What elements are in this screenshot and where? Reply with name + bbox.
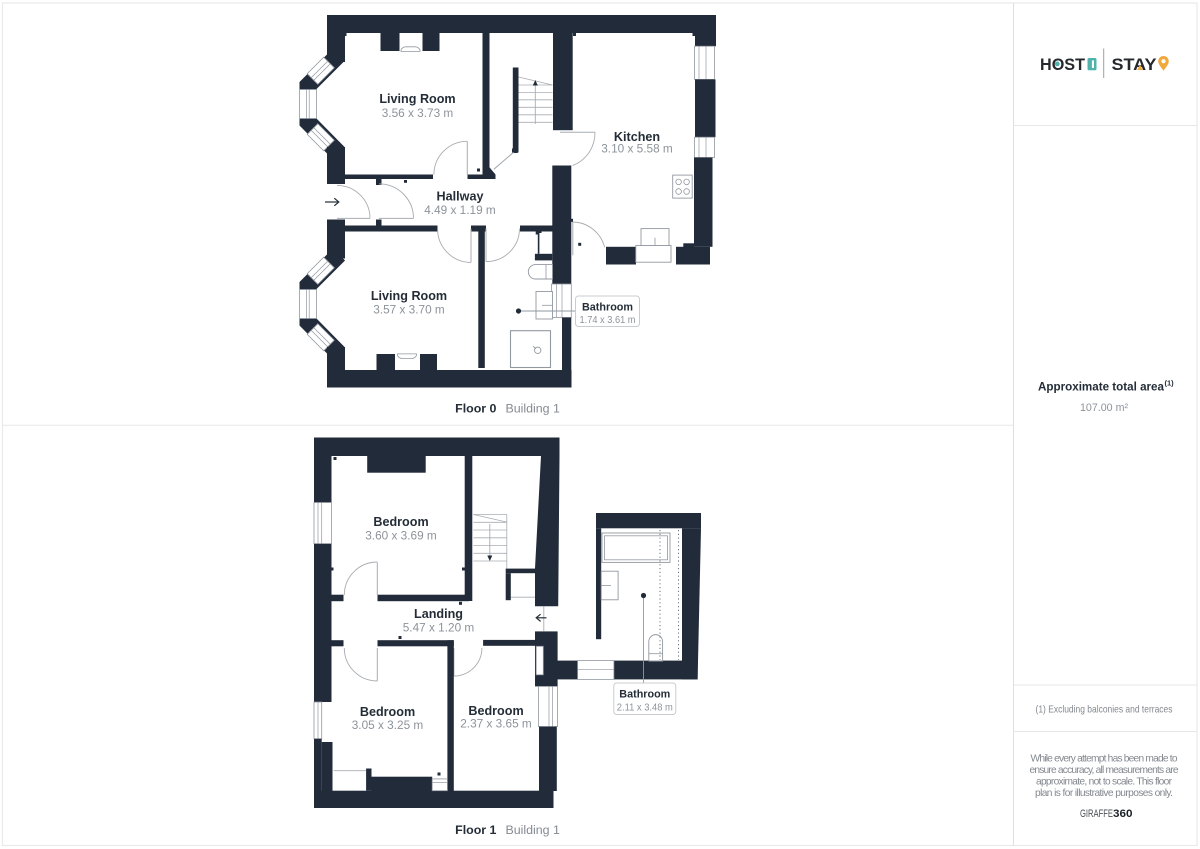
svg-text:Hallway: Hallway (437, 190, 484, 204)
svg-text:4.49 x 1.19 m: 4.49 x 1.19 m (424, 203, 496, 217)
svg-text:ensure accuracy, all measureme: ensure accuracy, all measurements are (1030, 765, 1179, 776)
svg-text:(1): (1) (1165, 379, 1175, 388)
svg-text:1.74 x 3.61 m: 1.74 x 3.61 m (580, 315, 636, 326)
svg-text:107.00 m²: 107.00 m² (1080, 402, 1128, 414)
svg-text:Bedroom: Bedroom (373, 515, 428, 529)
svg-text:Bathroom: Bathroom (582, 302, 633, 314)
svg-text:3.57 x 3.70 m: 3.57 x 3.70 m (373, 303, 445, 317)
svg-text:2.11 x 3.48 m: 2.11 x 3.48 m (617, 702, 673, 713)
svg-text:HOST: HOST (1040, 55, 1086, 74)
svg-text:Landing: Landing (414, 607, 463, 621)
svg-text:Approximate total area: Approximate total area (1038, 380, 1164, 394)
svg-text:plan is for illustrative purpo: plan is for illustrative purposes only. (1035, 788, 1173, 799)
svg-text:(1) Excluding balconies and te: (1) Excluding balconies and terraces (1036, 704, 1173, 715)
svg-text:3.56 x 3.73 m: 3.56 x 3.73 m (382, 106, 454, 120)
svg-text:3.05 x 3.25 m: 3.05 x 3.25 m (352, 718, 424, 732)
svg-text:3.10 x 5.58 m: 3.10 x 5.58 m (601, 142, 673, 156)
svg-text:Bathroom: Bathroom (619, 689, 670, 701)
svg-text:Living Room: Living Room (379, 92, 455, 106)
svg-text:Floor 1Building 1: Floor 1Building 1 (455, 823, 560, 837)
svg-text:Living Room: Living Room (371, 289, 447, 303)
svg-text:STAY: STAY (1112, 55, 1158, 74)
svg-text:2.37 x 3.65 m: 2.37 x 3.65 m (460, 717, 532, 731)
svg-text:While every attempt has been m: While every attempt has been made to (1031, 754, 1178, 765)
svg-text:3.60 x 3.69 m: 3.60 x 3.69 m (365, 529, 437, 543)
svg-text:approximate, not to scale. Thi: approximate, not to scale. This floor (1036, 777, 1173, 788)
svg-text:GIRAFFE: GIRAFFE (1080, 808, 1113, 820)
svg-text:5.47 x 1.20 m: 5.47 x 1.20 m (403, 621, 475, 635)
svg-text:Floor 0Building 1: Floor 0Building 1 (455, 402, 560, 416)
svg-text:Bedroom: Bedroom (360, 705, 415, 719)
svg-text:360: 360 (1113, 808, 1133, 820)
